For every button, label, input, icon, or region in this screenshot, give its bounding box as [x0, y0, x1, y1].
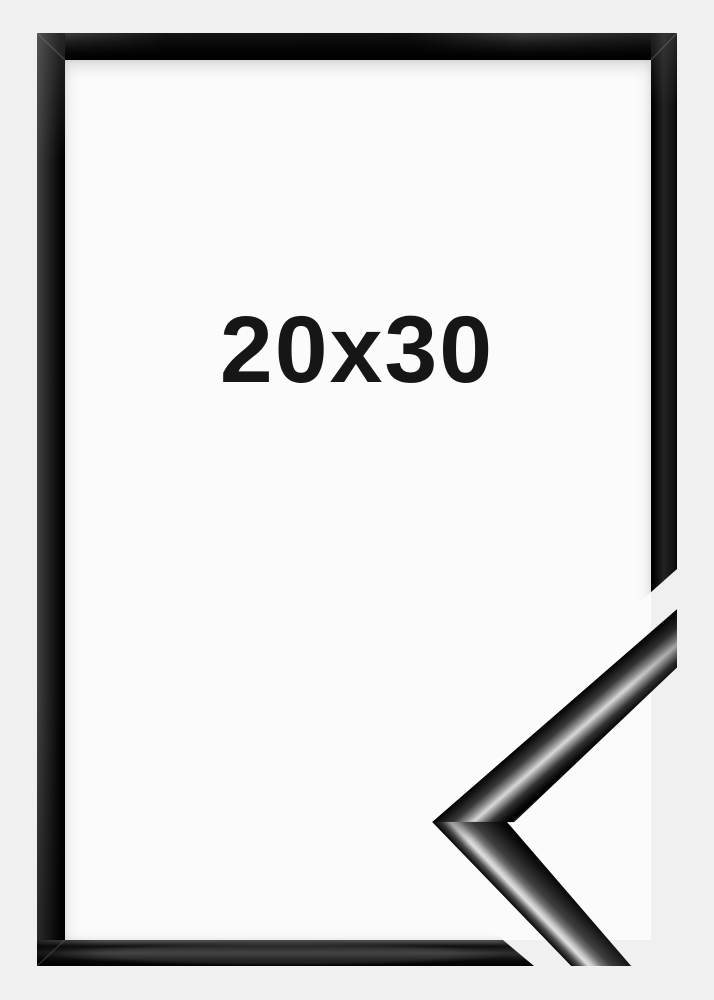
product-image: 20x30: [0, 0, 714, 1000]
frame-bottom-bar: [37, 940, 677, 966]
frame-right-bar: [651, 33, 677, 966]
size-label: 20x30: [0, 303, 714, 398]
frame-top-bar: [37, 33, 677, 60]
frame-left-bar: [37, 33, 65, 966]
